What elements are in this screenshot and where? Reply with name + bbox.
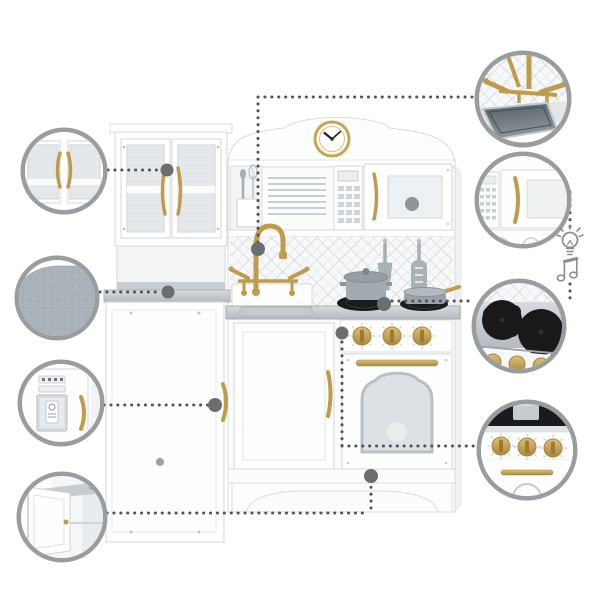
plate-rack — [268, 178, 326, 214]
oven-handle-detail — [501, 470, 553, 475]
callout-microwave — [477, 154, 569, 246]
oven-knob-detail — [540, 435, 567, 462]
control-keypad — [334, 166, 362, 230]
refrigerator — [104, 290, 230, 542]
wall-clock — [315, 122, 349, 156]
fridge-door-knob — [156, 458, 164, 466]
microwave-window-detail — [527, 180, 567, 218]
side-panel — [455, 166, 461, 512]
microwave-turntable — [405, 197, 419, 211]
oven-knob — [349, 323, 376, 350]
oven-knob-detail — [514, 434, 541, 461]
oven-knob-detail — [488, 433, 515, 460]
sink-cabinet-door — [234, 323, 334, 469]
callout-stove-burners — [474, 281, 564, 374]
kitchen-main-unit — [226, 118, 461, 513]
callout-oven-knobs — [479, 398, 575, 498]
play-kitchen — [104, 118, 461, 543]
oven-knob — [379, 323, 406, 350]
oven-knob — [409, 323, 436, 350]
sink-inset — [240, 307, 312, 316]
microwave-window — [388, 176, 442, 218]
microwave — [364, 164, 452, 230]
callout-open-door — [19, 474, 105, 560]
product-feature-image — [0, 0, 600, 600]
diagram-canvas — [0, 0, 600, 600]
callout-cabinet-doors — [23, 130, 105, 212]
callout-ice-dispenser — [20, 362, 103, 444]
oven-handle-bar — [356, 360, 438, 366]
hutch-cabinet — [110, 124, 232, 290]
callout-faucet-sink — [477, 53, 569, 145]
pot-lid-knob — [363, 268, 370, 275]
fridge-door — [106, 302, 224, 542]
bottom-rail — [228, 469, 455, 483]
door-knob-detail — [64, 520, 69, 525]
